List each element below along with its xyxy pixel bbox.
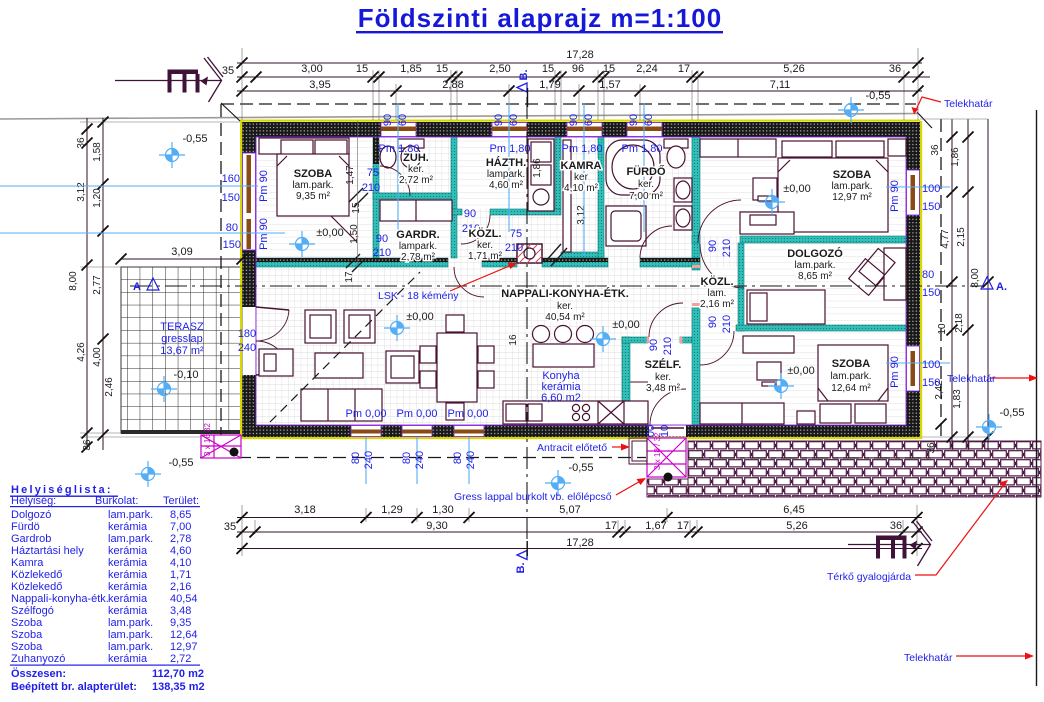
svg-text:lam.park.: lam.park. [108,629,153,641]
svg-text:210: 210 [373,247,391,259]
svg-text:1,20: 1,20 [92,188,103,208]
svg-text:KAMRA: KAMRA [561,160,602,172]
svg-text:40,54: 40,54 [170,593,198,605]
svg-text:75: 75 [367,167,379,179]
svg-text:90: 90 [464,208,476,220]
svg-text:GARDR.: GARDR. [396,229,439,241]
svg-text:ker: ker [574,172,589,183]
svg-text:Zuhanyozó: Zuhanyozó [11,653,65,665]
svg-text:ZUH.: ZUH. [403,152,429,164]
svg-text:Háztartási hely: Háztartási hely [11,545,84,557]
svg-text:7,00 m²: 7,00 m² [629,191,664,202]
svg-text:240: 240 [465,451,477,469]
svg-text:75: 75 [510,228,522,240]
svg-text:A: A [133,281,141,293]
svg-text:35: 35 [224,521,236,533]
svg-text:Pm 1,80: Pm 1,80 [490,143,531,155]
svg-text:36: 36 [890,520,902,532]
svg-text:KÖZL.: KÖZL. [701,275,734,288]
svg-text:12,97: 12,97 [170,641,198,653]
svg-text:80: 80 [922,269,934,281]
svg-text:SZOBA: SZOBA [294,168,333,180]
svg-text:36: 36 [889,63,901,75]
svg-text:210: 210 [662,337,674,355]
svg-text:Szoba: Szoba [11,629,43,641]
svg-text:17: 17 [677,520,689,532]
svg-text:kerámia: kerámia [108,557,148,569]
svg-text:2,15: 2,15 [956,227,967,247]
svg-text:2,16: 2,16 [170,581,191,593]
svg-text:Gress lappal burkolt vb. előlé: Gress lappal burkolt vb. előlépcső [454,491,612,503]
svg-text:80: 80 [452,452,464,464]
svg-text:2,88: 2,88 [442,79,463,91]
svg-text:1,83: 1,83 [952,389,963,409]
svg-text:1,29: 1,29 [381,504,402,516]
svg-text:1,58: 1,58 [92,142,103,162]
svg-text:3,95: 3,95 [309,79,330,91]
svg-text:Nappali-konyha-étk.: Nappali-konyha-étk. [11,593,109,605]
svg-text:2,72: 2,72 [170,653,191,665]
svg-text:15: 15 [436,63,448,75]
svg-text:15: 15 [542,63,554,75]
svg-text:60: 60 [643,114,655,126]
svg-text:1,67: 1,67 [645,520,666,532]
svg-text:90: 90 [568,114,580,126]
svg-text:lam.park.: lam.park. [108,641,153,653]
svg-text:Szoba: Szoba [11,641,43,653]
svg-text:1,86: 1,86 [950,147,961,167]
svg-text:12,97 m²: 12,97 m² [832,192,872,203]
svg-text:±0,00: ±0,00 [316,227,343,239]
svg-text:9,30: 9,30 [426,520,447,532]
svg-text:3,48 m²: 3,48 m² [646,383,681,394]
svg-text:Beépített br. alapterület:: Beépített br. alapterület: [11,681,137,693]
svg-text:-0,55: -0,55 [865,90,890,102]
svg-text:8,00: 8,00 [68,271,79,291]
svg-text:Közlekedő: Közlekedő [11,569,62,581]
svg-text:36: 36 [926,442,937,454]
svg-text:36: 36 [76,137,87,149]
svg-text:B.: B. [518,70,530,81]
svg-text:Térkő gyalogjárda: Térkő gyalogjárda [827,571,911,583]
svg-text:40,54 m²: 40,54 m² [545,312,585,323]
svg-text:3 x 18 / 32: 3 x 18 / 32 [653,432,662,470]
svg-text:17,28: 17,28 [566,537,594,549]
svg-text:1,57: 1,57 [599,79,620,91]
svg-text:kerámia: kerámia [108,581,148,593]
svg-text:3,00: 3,00 [301,63,322,75]
svg-text:210: 210 [721,239,733,257]
svg-text:ker.: ker. [408,164,424,175]
svg-text:-0,55: -0,55 [999,407,1024,419]
svg-text:2,78 m²: 2,78 m² [401,252,436,263]
svg-text:Összesen:: Összesen: [11,667,66,680]
svg-text:90: 90 [382,114,394,126]
svg-text:3,12: 3,12 [76,182,87,202]
svg-text:2,16 m²: 2,16 m² [700,299,735,310]
svg-text:Pm 0,00: Pm 0,00 [397,408,438,420]
svg-text:4,10: 4,10 [170,557,191,569]
svg-text:36: 36 [930,144,941,156]
svg-text:150: 150 [922,287,940,299]
svg-text:8,65: 8,65 [170,509,191,521]
svg-text:TERASZ: TERASZ [160,321,204,333]
svg-text:2,78: 2,78 [170,533,191,545]
svg-text:2,72 m²: 2,72 m² [399,175,434,186]
svg-text:Antracit előtető: Antracit előtető [537,442,607,454]
svg-text:1,71: 1,71 [170,569,191,581]
svg-text:±0,00: ±0,00 [783,183,810,195]
svg-text:17: 17 [678,63,690,75]
svg-text:Pm 0,00: Pm 0,00 [448,408,489,420]
svg-text:3,09: 3,09 [171,246,192,258]
svg-text:1,71 m²: 1,71 m² [468,251,503,262]
svg-text:2,46: 2,46 [104,377,115,397]
svg-text:Pm 1,80: Pm 1,80 [622,143,663,155]
svg-text:210: 210 [721,315,733,333]
svg-text:240: 240 [363,451,375,469]
svg-text:15: 15 [356,63,368,75]
svg-text:100: 100 [922,359,940,371]
svg-text:2,50: 2,50 [489,63,510,75]
svg-text:Burkolat:: Burkolat: [95,495,138,507]
svg-text:lam.park.: lam.park. [108,509,153,521]
svg-text:gresslap: gresslap [161,333,203,345]
svg-text:7,00: 7,00 [170,521,191,533]
svg-text:5,26: 5,26 [786,520,807,532]
svg-text:240: 240 [414,451,426,469]
svg-text:DOLGOZÓ: DOLGOZÓ [787,247,843,260]
svg-text:Helyiség:: Helyiség: [11,495,56,507]
svg-text:5,26: 5,26 [783,63,804,75]
svg-text:96: 96 [572,63,584,75]
svg-text:Szoba: Szoba [11,617,43,629]
svg-text:90: 90 [493,114,505,126]
svg-text:lam.park.: lam.park. [794,260,835,271]
svg-text:±0,00: ±0,00 [787,365,814,377]
svg-text:Kamra: Kamra [11,557,44,569]
svg-text:±0,00: ±0,00 [406,311,433,323]
svg-text:Pm 90: Pm 90 [258,170,270,202]
svg-text:16: 16 [508,334,519,346]
svg-text:4,10 m²: 4,10 m² [564,183,599,194]
svg-text:150: 150 [922,201,940,213]
svg-text:A.: A. [996,281,1007,293]
svg-text:13,67 m²: 13,67 m² [160,345,204,357]
svg-text:ker.: ker. [557,301,573,312]
svg-text:8,65 m²: 8,65 m² [798,271,833,282]
svg-text:4,77: 4,77 [940,229,951,249]
svg-text:3,18: 3,18 [294,504,315,516]
svg-text:112,70 m2: 112,70 m2 [152,668,204,680]
svg-text:lam.park.: lam.park. [108,533,153,545]
svg-text:150: 150 [222,192,240,204]
svg-text:12,64 m²: 12,64 m² [831,383,871,394]
svg-text:Földszinti alaprajz m=1:100: Földszinti alaprajz m=1:100 [358,3,722,33]
svg-text:210: 210 [505,242,523,254]
svg-text:36: 36 [82,439,93,451]
svg-text:9,35 m²: 9,35 m² [296,191,331,202]
svg-text:Gardrob: Gardrob [11,533,51,545]
svg-text:8,00: 8,00 [970,268,981,288]
svg-text:HÁZTH.: HÁZTH. [486,156,526,169]
svg-text:4,26: 4,26 [76,342,87,362]
svg-text:160: 160 [222,173,240,185]
svg-text:Pm 90: Pm 90 [258,218,270,250]
svg-text:90: 90 [648,339,660,351]
svg-text:1,85: 1,85 [400,63,421,75]
svg-text:Telekhatár: Telekhatár [904,652,953,664]
svg-text:NAPPALI-KONYHA-ÉTK.: NAPPALI-KONYHA-ÉTK. [501,287,629,300]
svg-text:6,60 m2: 6,60 m2 [541,392,581,404]
svg-text:Pm 90: Pm 90 [889,180,901,212]
svg-text:12,64: 12,64 [170,629,198,641]
svg-text:lam.park.: lam.park. [831,181,872,192]
svg-text:1,86: 1,86 [532,158,543,178]
svg-text:Pm 0,00: Pm 0,00 [346,408,387,420]
svg-text:Telekhatár: Telekhatár [944,98,993,110]
svg-text:kerámia: kerámia [108,521,148,533]
svg-text:5,07: 5,07 [559,504,580,516]
svg-text:LSK - 18 kémény: LSK - 18 kémény [378,290,459,302]
svg-text:kerámia: kerámia [108,593,148,605]
svg-text:Pm 1,80: Pm 1,80 [562,143,603,155]
svg-text:Dolgozó: Dolgozó [11,509,51,521]
svg-text:KÖZL.: KÖZL. [469,227,502,240]
svg-text:-0,55: -0,55 [182,133,207,145]
svg-text:80: 80 [401,452,413,464]
svg-text:4,00: 4,00 [92,347,103,367]
svg-text:Pm 90: Pm 90 [889,356,901,388]
svg-text:3,48: 3,48 [170,605,191,617]
svg-text:150: 150 [223,239,241,251]
svg-text:-0,55: -0,55 [568,462,593,474]
svg-text:17: 17 [344,271,355,283]
svg-text:7,11: 7,11 [770,79,791,91]
svg-text:Szélfogó: Szélfogó [11,605,54,617]
svg-text:lampark.: lampark. [487,169,525,180]
svg-text:10: 10 [937,323,948,335]
svg-text:ker.: ker. [638,179,654,190]
svg-text:6,45: 6,45 [783,504,804,516]
svg-text:180: 180 [238,328,256,340]
svg-text:60: 60 [397,114,409,126]
svg-text:80: 80 [226,222,238,234]
svg-text:1,47: 1,47 [345,165,356,185]
svg-text:90: 90 [376,233,388,245]
svg-text:35: 35 [222,65,234,77]
svg-text:80: 80 [350,452,362,464]
svg-text:kerámia: kerámia [108,545,148,557]
svg-text:lam.park.: lam.park. [108,617,153,629]
svg-text:2,18: 2,18 [954,313,965,333]
svg-text:1,79: 1,79 [539,79,560,91]
svg-text:15: 15 [603,63,615,75]
svg-text:240: 240 [238,342,256,354]
svg-text:138,35 m2: 138,35 m2 [152,681,205,693]
svg-text:4,60 m²: 4,60 m² [489,180,524,191]
svg-text:1,50: 1,50 [349,224,360,244]
svg-text:17: 17 [605,520,617,532]
svg-text:17,28: 17,28 [566,49,594,61]
svg-text:lam.park.: lam.park. [830,371,871,382]
svg-text:kerámia: kerámia [108,653,148,665]
svg-text:lam.: lam. [708,288,727,299]
svg-text:15: 15 [351,202,362,214]
svg-text:SZOBA: SZOBA [832,358,871,370]
svg-text:Közlekedő: Közlekedő [11,581,62,593]
svg-text:kerámia: kerámia [108,569,148,581]
svg-text:60: 60 [583,114,595,126]
svg-text:ker.: ker. [655,372,671,383]
svg-text:Fürdö: Fürdö [11,521,40,533]
svg-text:lam.park.: lam.park. [292,180,333,191]
svg-text:-0,10: -0,10 [173,369,198,381]
svg-text:3 x 16 32: 3 x 16 32 [203,423,212,456]
svg-text:-0,55: -0,55 [168,457,193,469]
svg-text:±0,00: ±0,00 [612,319,639,331]
svg-text:ker.: ker. [477,240,493,251]
svg-text:lampark.: lampark. [399,241,437,252]
svg-text:100: 100 [922,183,940,195]
svg-text:FÜRDŐ: FÜRDŐ [626,165,666,178]
svg-text:9,35: 9,35 [170,617,191,629]
svg-text:1,30: 1,30 [432,504,453,516]
svg-text:Terület:: Terület: [163,495,199,507]
svg-text:SZOBA: SZOBA [833,169,872,181]
svg-text:60: 60 [508,114,520,126]
svg-text:4,60: 4,60 [170,545,191,557]
svg-text:90: 90 [707,316,719,328]
svg-text:kerámia: kerámia [108,605,148,617]
svg-text:90: 90 [707,240,719,252]
svg-text:210: 210 [362,182,380,194]
svg-text:Telekhatár: Telekhatár [947,373,996,385]
svg-text:SZÉLF.: SZÉLF. [645,358,682,371]
svg-text:3,12: 3,12 [576,205,587,225]
svg-text:2,24: 2,24 [636,63,657,75]
svg-text:150: 150 [922,377,940,389]
svg-text:2,77: 2,77 [92,275,103,295]
svg-text:B.: B. [515,563,527,574]
svg-text:90: 90 [628,114,640,126]
